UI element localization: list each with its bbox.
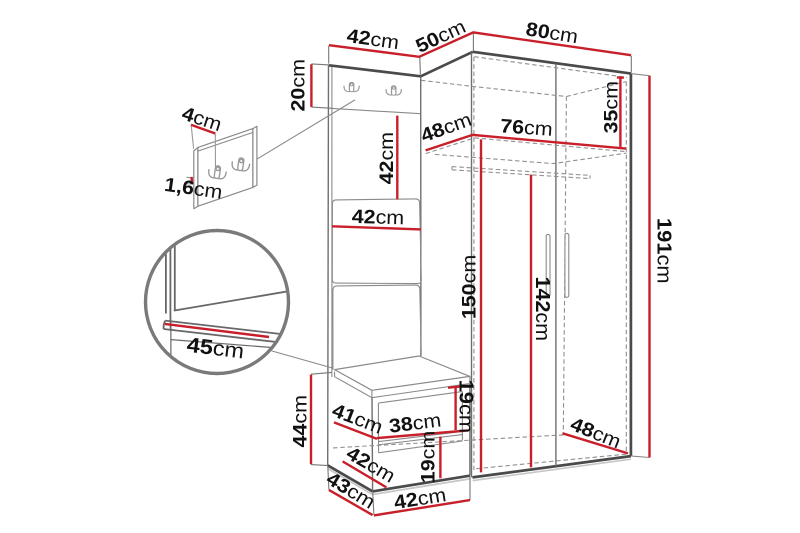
svg-text:42cm: 42cm [351,206,404,229]
svg-text:35cm: 35cm [600,81,622,133]
svg-text:142cm: 142cm [531,277,553,342]
svg-text:42cm: 42cm [376,132,398,184]
svg-text:44cm: 44cm [290,395,312,447]
svg-text:20cm: 20cm [287,59,309,111]
svg-text:191cm: 191cm [653,218,675,284]
svg-text:76cm: 76cm [500,115,554,140]
svg-text:19cm: 19cm [417,431,439,483]
svg-text:150cm: 150cm [458,255,480,319]
svg-text:19cm: 19cm [455,380,477,434]
